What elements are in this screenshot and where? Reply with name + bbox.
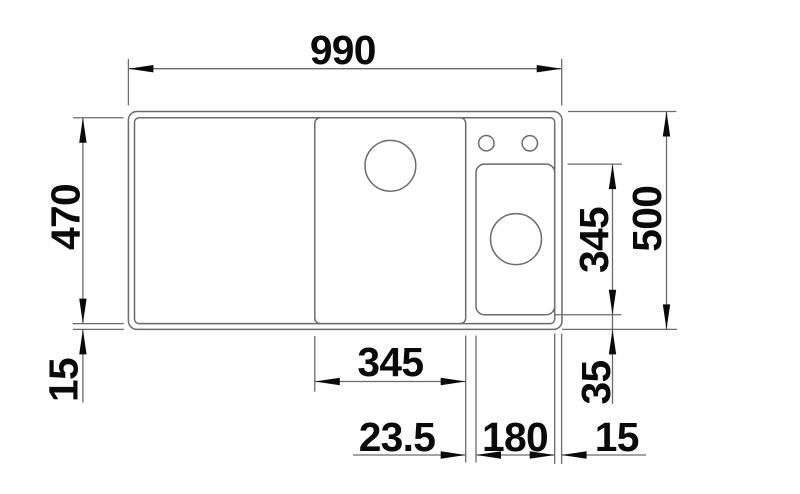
svg-text:470: 470 bbox=[43, 184, 89, 250]
svg-text:990: 990 bbox=[310, 27, 376, 73]
svg-text:23.5: 23.5 bbox=[359, 414, 436, 460]
svg-text:35: 35 bbox=[573, 361, 619, 405]
svg-text:180: 180 bbox=[482, 414, 548, 460]
svg-text:345: 345 bbox=[357, 339, 423, 385]
svg-text:345: 345 bbox=[571, 207, 617, 273]
svg-text:500: 500 bbox=[624, 186, 670, 252]
svg-text:15: 15 bbox=[41, 358, 87, 402]
svg-text:15: 15 bbox=[595, 414, 639, 460]
